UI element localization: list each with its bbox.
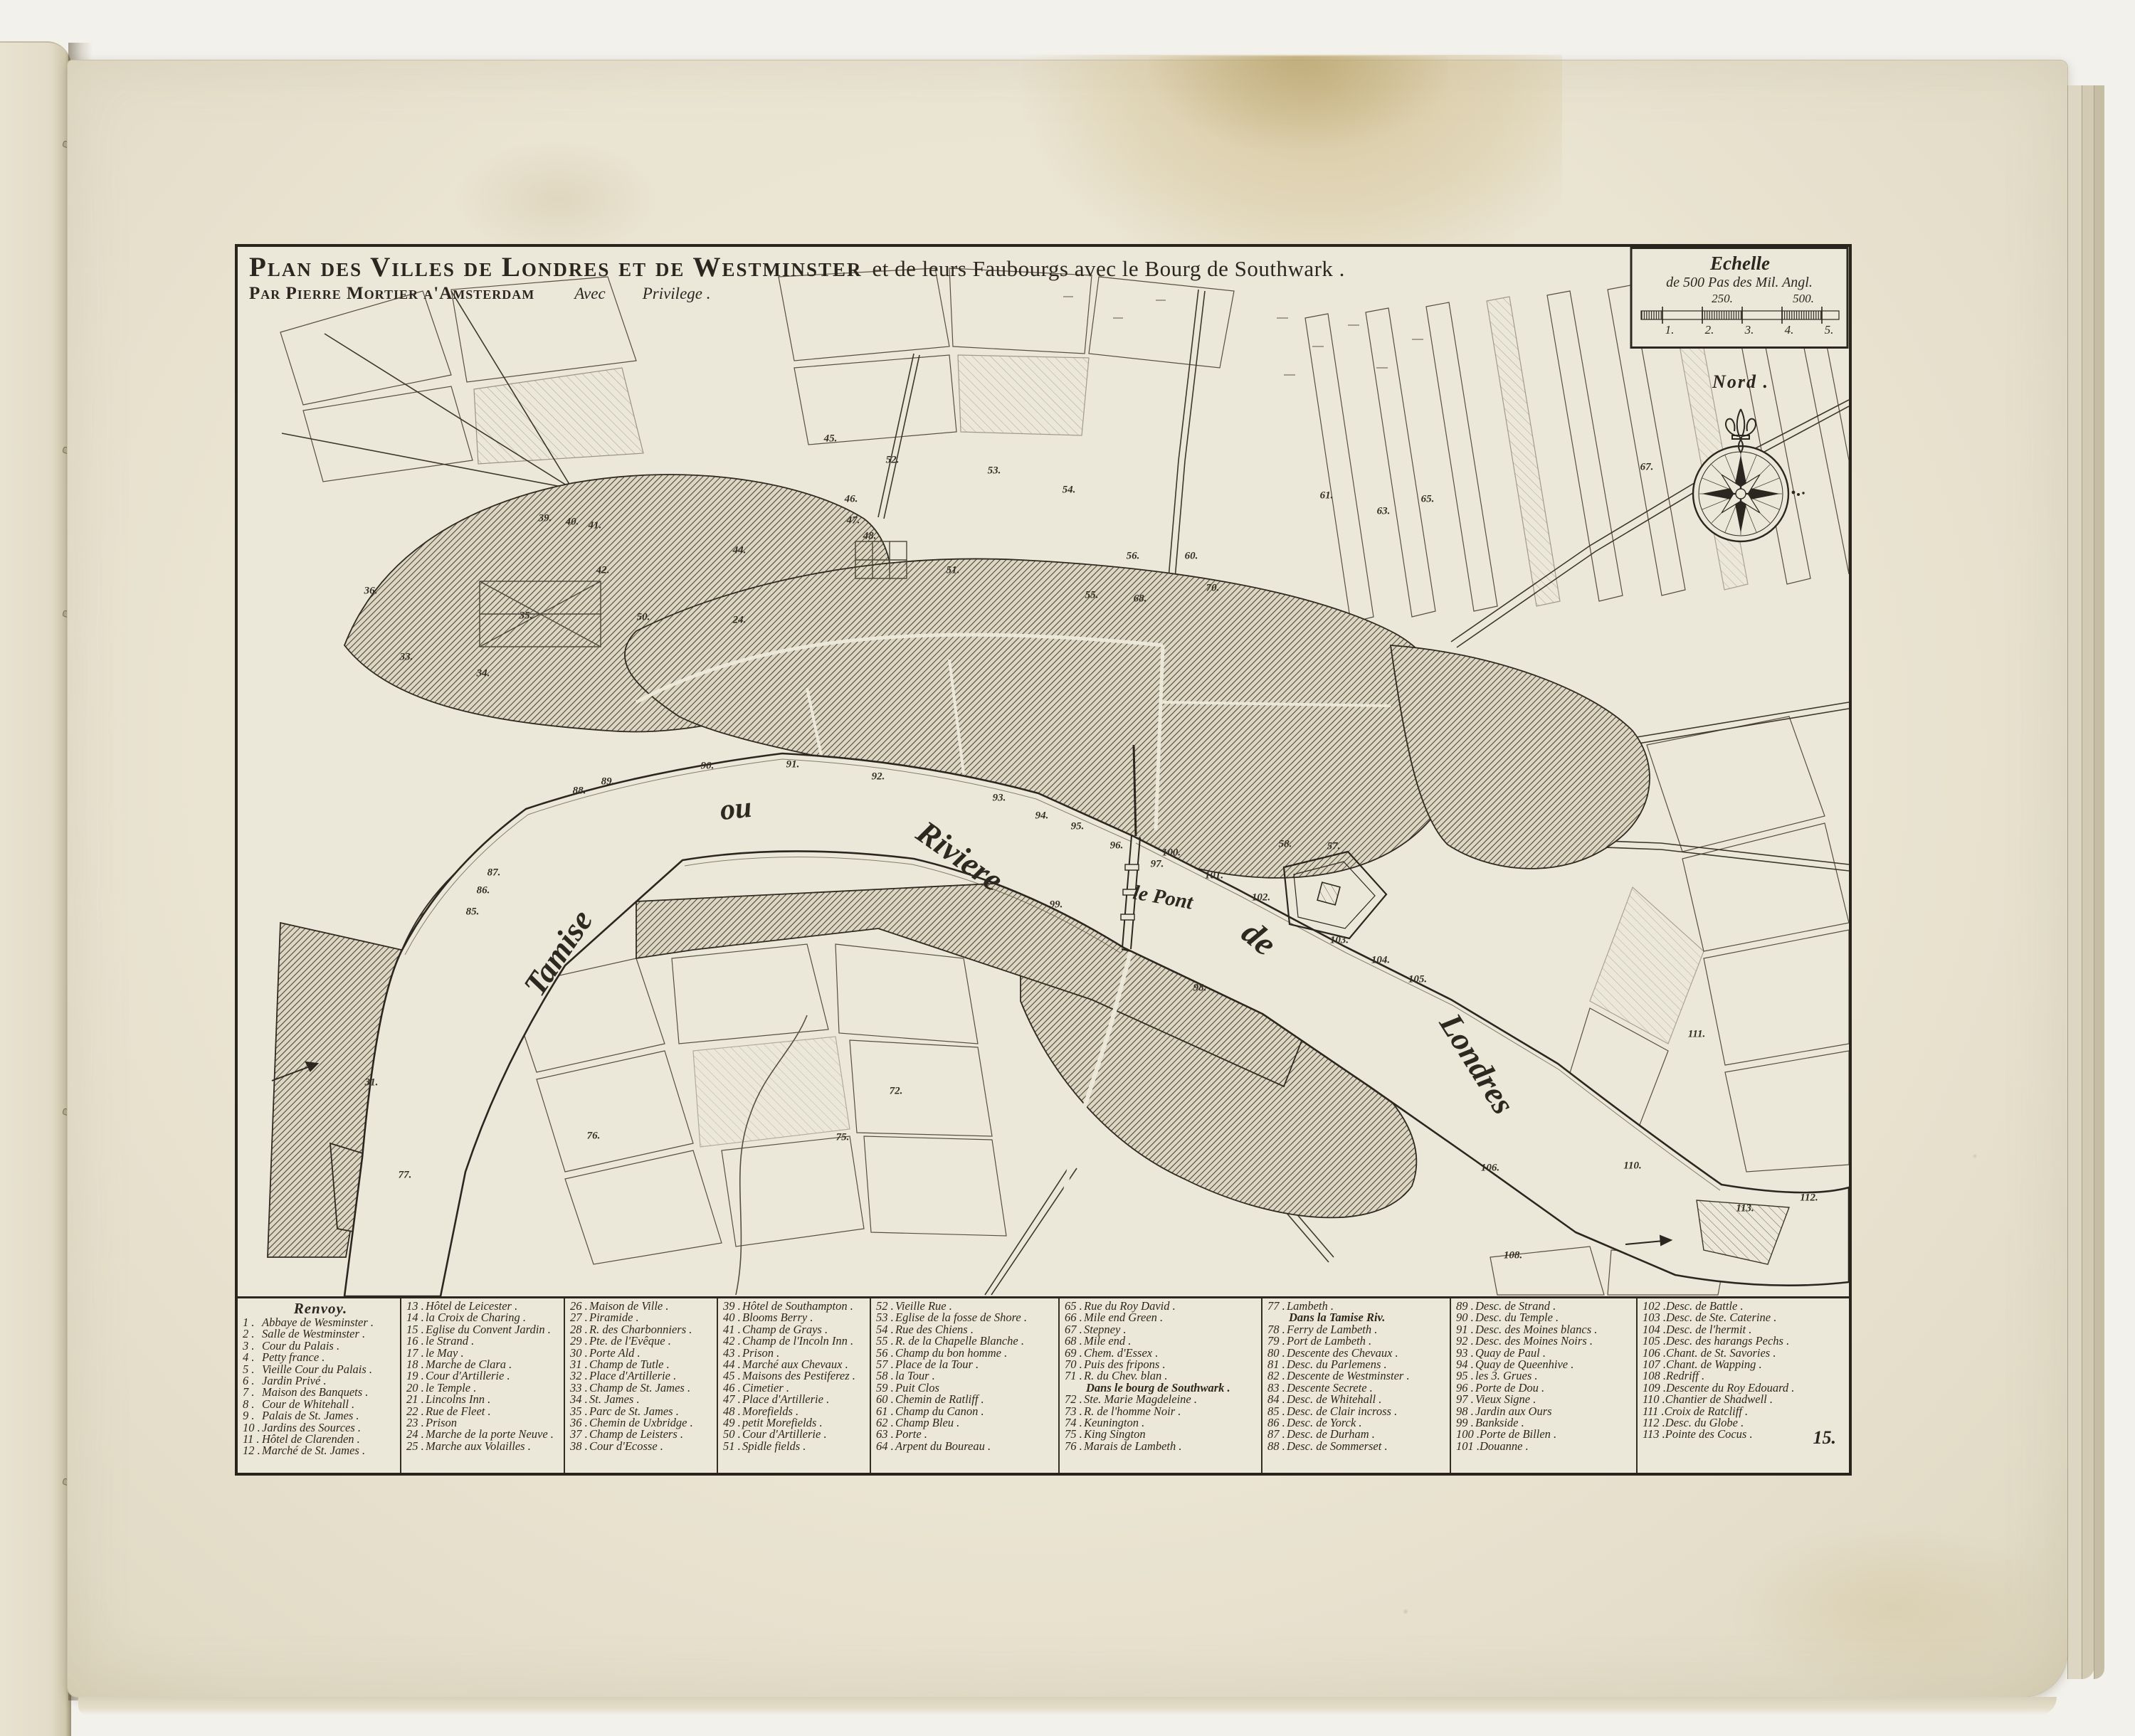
map-number-97: 97. — [1151, 859, 1164, 871]
map-number-111: 111. — [1688, 1029, 1706, 1041]
legend-title: Renvoy. — [243, 1301, 399, 1317]
map-number-47: 47. — [847, 515, 860, 527]
legend-entry-number: 71 . — [1065, 1370, 1084, 1382]
byline-privilege: Privilege . — [643, 285, 711, 302]
map-number-101: 101. — [1205, 870, 1223, 882]
map-number-55: 55. — [1085, 590, 1099, 602]
legend-column-6: 65 .Rue du Roy David .66 .Mile end Green… — [1058, 1298, 1261, 1473]
legend-entry-number: 76 . — [1065, 1441, 1084, 1452]
page-edges — [2067, 85, 2109, 1679]
north-label: Nord . — [1712, 371, 1769, 393]
legend-entry-number: 101 . — [1456, 1441, 1480, 1452]
legend-column-2: 13 .Hôtel de Leicester .14 .la Croix de … — [400, 1298, 564, 1473]
map-number-58: 58. — [1279, 839, 1292, 851]
map-number-46: 46. — [845, 494, 858, 506]
legend-entry-number: 51 . — [723, 1441, 742, 1452]
legend-entry-88: 88 .Desc. de Sommerset . — [1267, 1441, 1448, 1452]
scale-subtitle: de 500 Pas des Mil. Angl. — [1625, 274, 1853, 291]
map-number-41: 41. — [589, 520, 602, 532]
map-number-65: 65. — [1421, 494, 1435, 506]
legend-entry-64: 64 .Arpent du Boureau . — [876, 1441, 1057, 1452]
legend-entry-label: Marais de Lambeth . — [1084, 1439, 1182, 1453]
map-number-53: 53. — [988, 465, 1001, 477]
legend-entry-label: Douanne . — [1480, 1439, 1529, 1453]
scale-title: Echelle — [1631, 253, 1849, 274]
map-number-93: 93. — [993, 793, 1006, 805]
legend-column-8: 89 .Desc. de Strand .90 .Desc. du Temple… — [1450, 1298, 1636, 1473]
map-number-72: 72. — [890, 1086, 903, 1098]
map-number-70: 70. — [1206, 583, 1220, 595]
map-title: Plan des Villes de Londres et de Westmin… — [249, 251, 1345, 283]
legend-entry-label: Arpent du Boureau . — [895, 1439, 991, 1453]
scale-mile-label: 5. — [1825, 324, 1834, 336]
page-edge — [2094, 85, 2104, 1679]
map-number-112: 112. — [1800, 1192, 1818, 1205]
map-number-90: 90. — [701, 761, 715, 773]
scale-mile-label: 3. — [1745, 324, 1754, 336]
scale-mile-label: 2. — [1705, 324, 1714, 336]
map-number-113: 113. — [1736, 1203, 1754, 1215]
map-number-77: 77. — [399, 1170, 412, 1182]
page-edge — [2067, 85, 2082, 1679]
map-number-31: 31. — [365, 1077, 379, 1089]
map-number-57: 57. — [1327, 841, 1341, 853]
map-number-76: 76. — [587, 1131, 601, 1143]
legend-column-3: 26 .Maison de Ville .27 .Piramide .28 .R… — [564, 1298, 717, 1473]
map-number-67: 67. — [1640, 462, 1654, 474]
map-number-35: 35. — [520, 610, 533, 623]
map-number-104: 104. — [1371, 955, 1390, 967]
legend-column-7: 77 .Lambeth .Dans la Tamise Riv.78 .Ferr… — [1261, 1298, 1450, 1473]
byline-avec: Avec — [574, 285, 605, 302]
map-number-44: 44. — [733, 545, 747, 557]
map-number-34: 34. — [477, 668, 490, 680]
map-legend: Renvoy.1 .Abbaye de Wesminster .2 .Salle… — [238, 1296, 1849, 1473]
map-number-50: 50. — [637, 612, 650, 624]
paper-stain — [1726, 1519, 2060, 1697]
legend-entry-label: Pointe des Cocus . — [1665, 1427, 1753, 1441]
legend-entry-label: Spidle fields . — [742, 1439, 806, 1453]
scale-top-label: 250. — [1712, 292, 1733, 305]
legend-entry-number: 12 . — [243, 1445, 262, 1456]
legend-entry-38: 38 .Cour d'Ecosse . — [570, 1441, 715, 1452]
legend-column-1: Renvoy.1 .Abbaye de Wesminster .2 .Salle… — [238, 1298, 400, 1473]
legend-column-5: 52 .Vieille Rue .53 .Eglise de la fosse … — [870, 1298, 1058, 1473]
book-scan: Plan des Villes de Londres et de Westmin… — [0, 0, 2135, 1735]
map-number-87: 87. — [487, 867, 501, 879]
legend-entry-number: 38 . — [570, 1441, 589, 1452]
map-number-61: 61. — [1320, 490, 1334, 502]
scale-top-label: 500. — [1793, 292, 1814, 305]
map-title-main: Plan des Villes de Londres et de Westmin… — [249, 252, 863, 282]
plate-number: 15. — [1813, 1427, 1837, 1449]
river-label-ou: ou — [718, 790, 753, 827]
map-number-48: 48. — [863, 531, 877, 543]
legend-column-4: 39 .Hôtel de Southampton .40 .Blooms Ber… — [717, 1298, 870, 1473]
legend-entry-label: Desc. de Sommerset . — [1287, 1439, 1388, 1453]
map-byline: Par Pierre Mortier a'AmsterdamAvecPrivil… — [249, 284, 710, 304]
map-number-88: 88. — [573, 785, 586, 798]
paper-stain — [1149, 56, 1448, 149]
legend-entry-101: 101 .Douanne . — [1456, 1441, 1635, 1452]
legend-entry-12: 12 .Marché de St. James . — [243, 1445, 399, 1456]
map-number-56: 56. — [1127, 551, 1140, 563]
page-edge — [2082, 85, 2094, 1679]
map-number-108: 108. — [1504, 1250, 1522, 1262]
legend-entry-label: Marché de St. James . — [262, 1444, 365, 1457]
legend-entry-51: 51 .Spidle fields . — [723, 1441, 868, 1452]
east-ornament-icon — [1792, 491, 1805, 496]
map-number-91: 91. — [786, 759, 800, 771]
map-number-52: 52. — [886, 455, 900, 467]
adjacent-page-edge — [0, 41, 71, 1736]
map-number-54: 54. — [1063, 485, 1076, 497]
legend-entry-76: 76 .Marais de Lambeth . — [1065, 1441, 1260, 1452]
map-number-102: 102. — [1252, 892, 1270, 904]
publisher: Par Pierre Mortier a'Amsterdam — [249, 284, 534, 303]
legend-entry-number: 88 . — [1267, 1441, 1287, 1452]
map-number-95: 95. — [1071, 821, 1085, 833]
map-number-36: 36. — [364, 586, 378, 598]
bottom-page-edge — [78, 1697, 2057, 1715]
legend-entry-number: 64 . — [876, 1441, 895, 1452]
legend-entry-25: 25 .Marche aux Volailles . — [406, 1441, 562, 1452]
map-number-33: 33. — [400, 652, 413, 664]
map-number-60: 60. — [1185, 551, 1198, 563]
map-number-39: 39. — [539, 513, 552, 525]
map-number-24: 24. — [733, 615, 747, 627]
map-number-63: 63. — [1377, 506, 1391, 518]
map-number-105: 105. — [1408, 974, 1427, 986]
map-number-89: 89. — [601, 776, 615, 788]
legend-entry-number: 77 . — [1267, 1301, 1287, 1312]
legend-entry-label: Cour d'Ecosse . — [589, 1439, 663, 1453]
map-number-106: 106. — [1481, 1163, 1499, 1175]
map-number-40: 40. — [566, 517, 579, 529]
map-number-68: 68. — [1134, 593, 1147, 605]
map-plate: Plan des Villes de Londres et de Westmin… — [235, 244, 1852, 1476]
map-number-75: 75. — [836, 1132, 850, 1144]
map-number-51: 51. — [947, 565, 960, 577]
atlas-page: Plan des Villes de Londres et de Westmin… — [68, 60, 2067, 1697]
map-number-99: 99. — [1050, 899, 1063, 911]
scale-mile-label: 4. — [1785, 324, 1794, 336]
map-number-100: 100. — [1162, 847, 1181, 859]
map-number-45: 45. — [824, 433, 838, 445]
scale-mile-label: 1. — [1665, 324, 1675, 336]
legend-entry-number: 113 . — [1643, 1429, 1665, 1440]
map-number-85: 85. — [466, 906, 480, 919]
legend-entry-number: 25 . — [406, 1441, 426, 1452]
map-number-110: 110. — [1623, 1160, 1641, 1173]
map-number-86: 86. — [477, 885, 490, 897]
map-number-42: 42. — [596, 565, 610, 577]
legend-entry-label: Marche aux Volailles . — [426, 1439, 531, 1453]
map-number-94: 94. — [1035, 810, 1049, 822]
map-number-96: 96. — [1110, 840, 1124, 852]
map-number-92: 92. — [872, 771, 885, 783]
map-number-103: 103. — [1330, 935, 1349, 947]
map-title-sub: et de leurs Faubourgs avec le Bourg de S… — [873, 256, 1345, 281]
paper-stain — [452, 139, 665, 260]
engraved-map — [238, 247, 1849, 1473]
map-number-98: 98. — [1193, 983, 1207, 995]
